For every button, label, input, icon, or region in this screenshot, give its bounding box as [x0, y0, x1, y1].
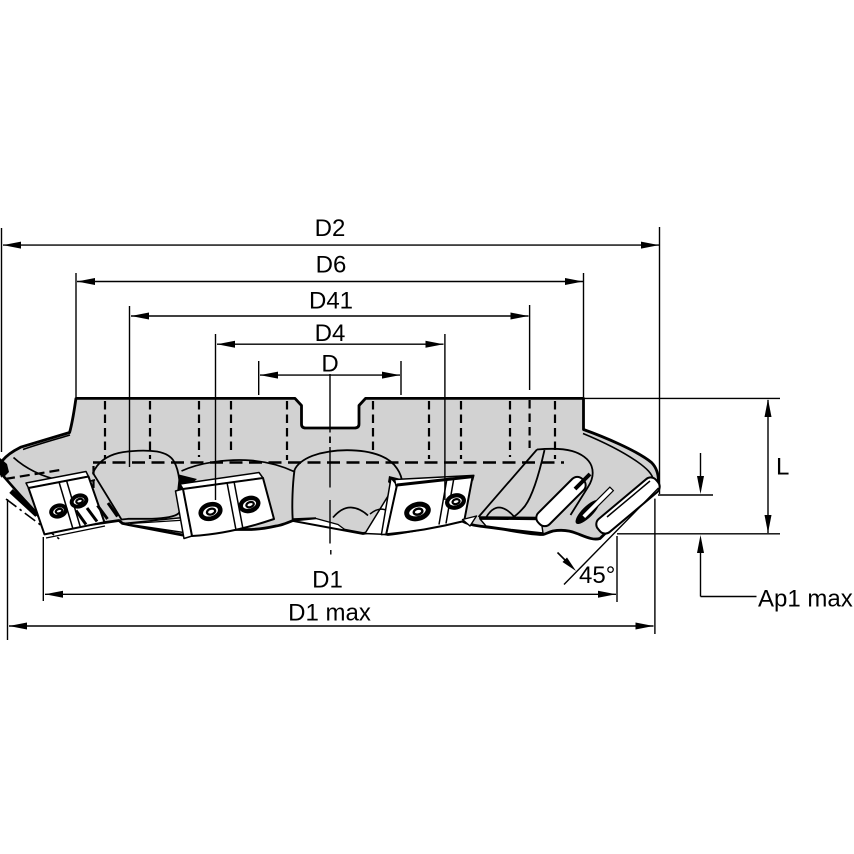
- svg-text:D: D: [321, 351, 338, 378]
- svg-text:D2: D2: [315, 215, 346, 242]
- svg-text:D1 max: D1 max: [288, 600, 371, 627]
- svg-text:D41: D41: [309, 288, 353, 315]
- svg-text:Ap1 max: Ap1 max: [758, 586, 853, 613]
- svg-text:L: L: [776, 454, 789, 481]
- svg-text:D1: D1: [312, 567, 343, 594]
- svg-text:D4: D4: [315, 320, 346, 347]
- svg-text:45°: 45°: [579, 562, 615, 589]
- svg-text:D6: D6: [316, 252, 347, 279]
